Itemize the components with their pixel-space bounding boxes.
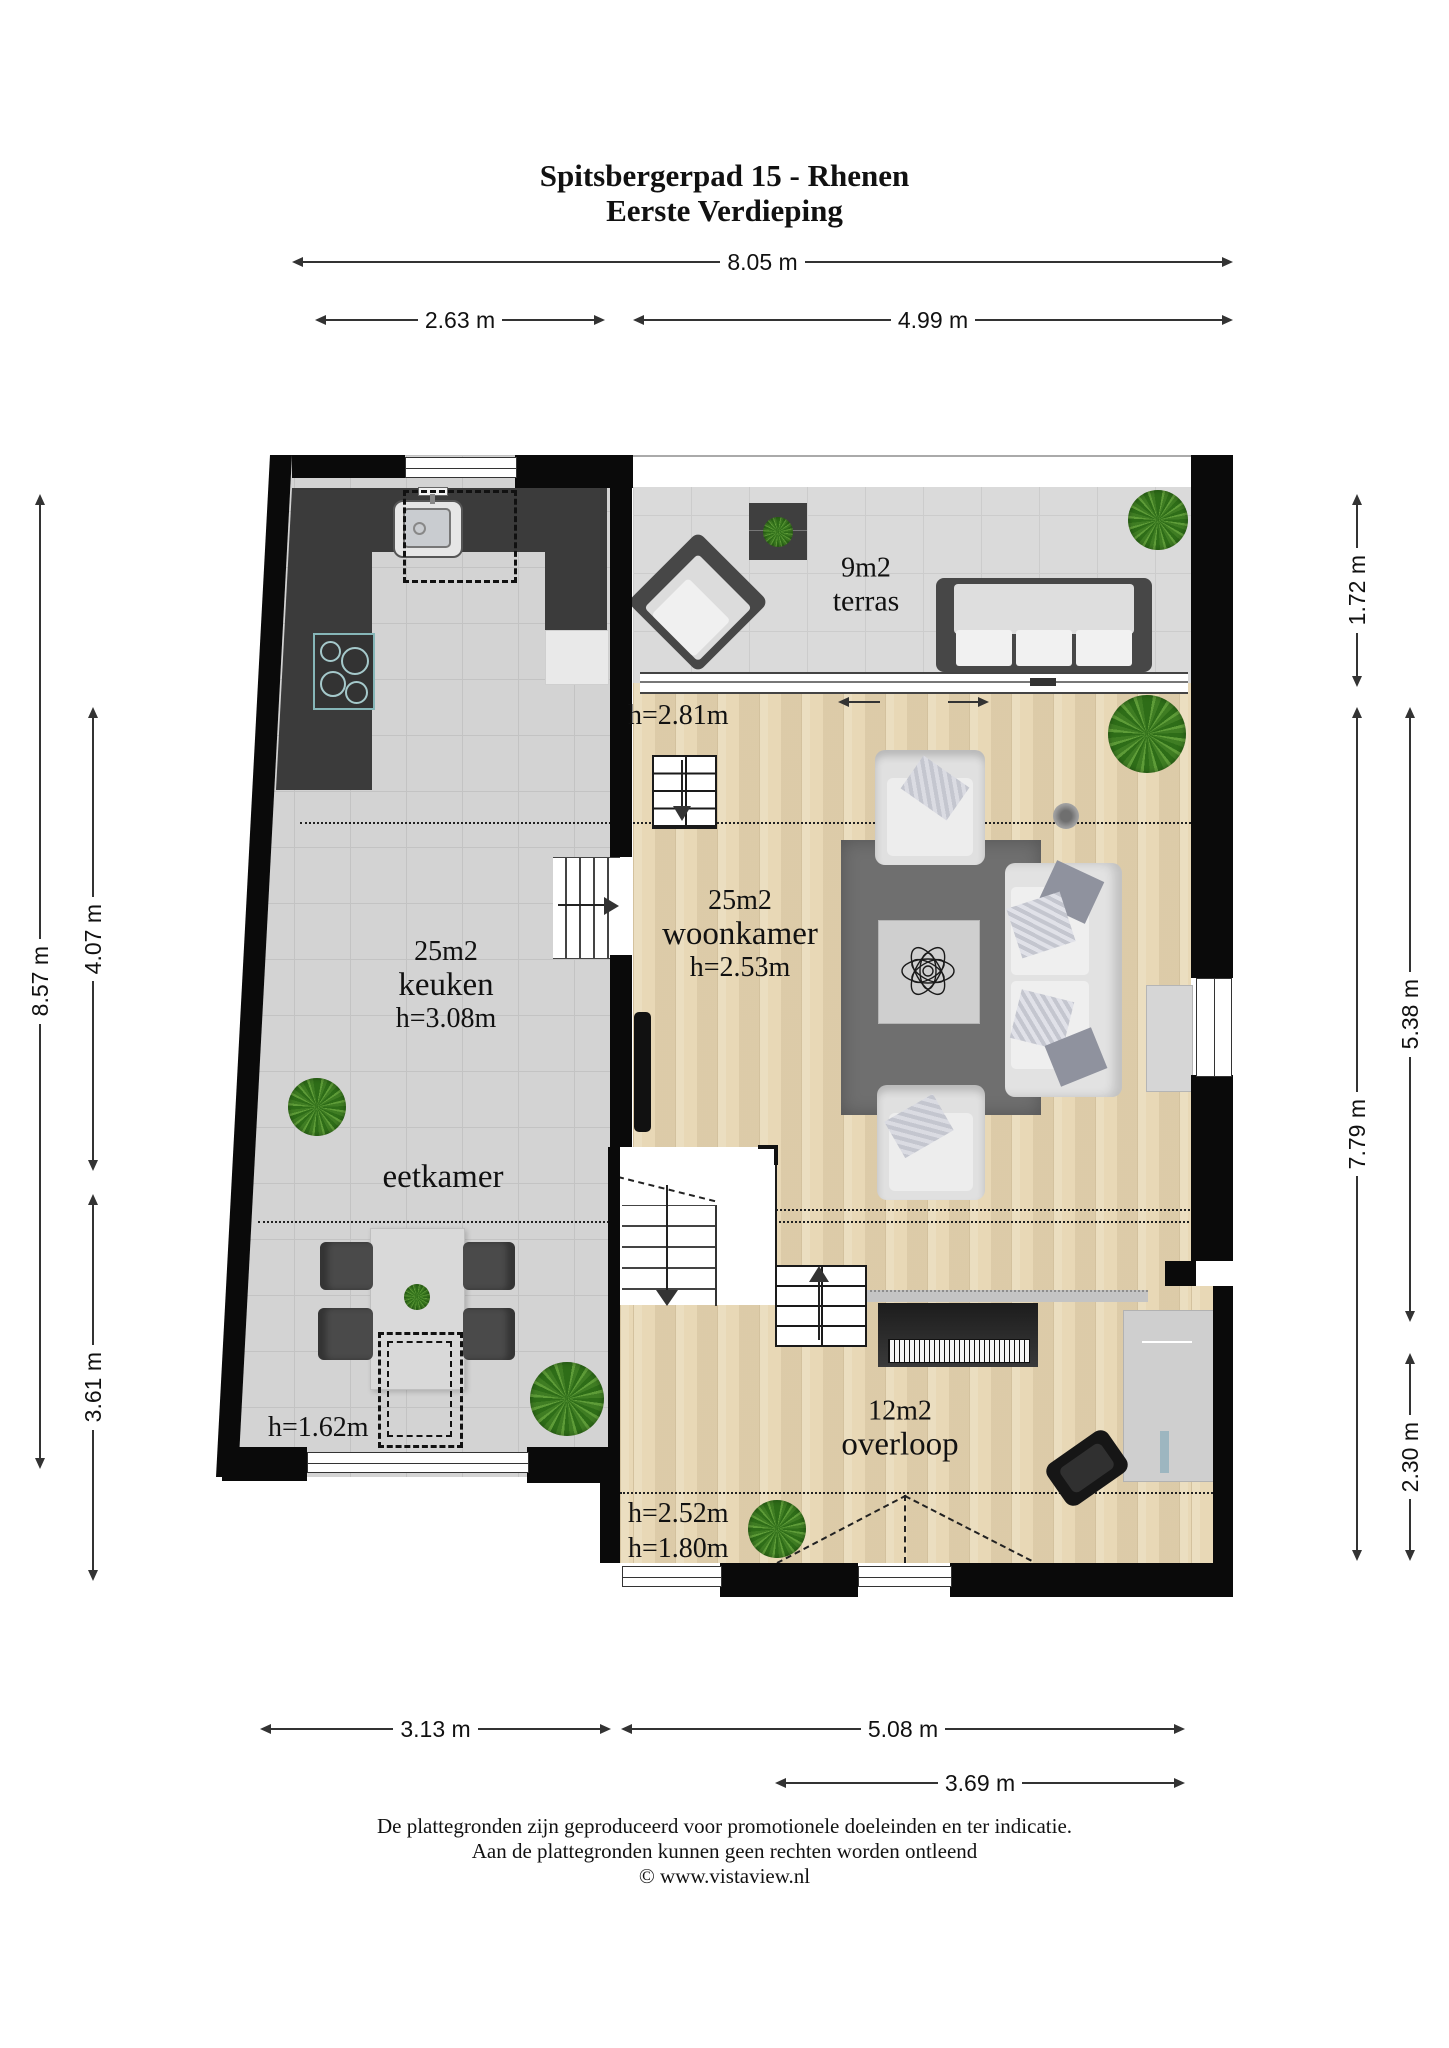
window (858, 1566, 952, 1587)
tv-icon (634, 1012, 651, 1132)
title-address: Spitsbergerpad 15 - Rhenen (0, 158, 1449, 193)
door-handle (1030, 678, 1056, 686)
dining-chair (463, 1308, 515, 1360)
room-name: eetkamer (383, 1159, 504, 1195)
wall-eetkamer-bottom-right (527, 1447, 610, 1483)
terrace-sofa (936, 578, 1152, 672)
door-arrow-left-icon (838, 697, 849, 707)
terras-open-edge (633, 455, 1191, 487)
floorplan-page: Spitsbergerpad 15 - Rhenen Eerste Verdie… (0, 0, 1449, 2048)
room-name: overloop (841, 1427, 958, 1463)
dim-left-mid: 4.07 m (85, 707, 101, 1171)
dim-width-right: 4.99 m (633, 312, 1233, 328)
room-name: keuken (396, 967, 497, 1003)
stair-arrow-stem (666, 1185, 668, 1291)
stair-up-arrow-icon (809, 1266, 829, 1282)
height-label: h=2.81m (628, 700, 729, 732)
dim-label: 2.63 m (418, 312, 502, 328)
wall-right-lower (1213, 1286, 1233, 1563)
plant-icon (1108, 695, 1186, 773)
roof-line-vertical (904, 1495, 906, 1563)
dim-label: 4.07 m (85, 897, 101, 981)
stair-arrow-stem (818, 1282, 820, 1340)
wall-divider-d (600, 1477, 620, 1563)
dim-right-upper: 5.38 m (1402, 707, 1418, 1322)
sofa-back-cushion (954, 584, 1134, 634)
room-area: 25m2 (662, 885, 818, 916)
title-floor: Eerste Verdieping (0, 193, 1449, 228)
height-label: h=2.52m (628, 1498, 729, 1530)
dormer-outline-inner (387, 1341, 452, 1437)
wall-top-mid (515, 455, 633, 488)
height-label: h=1.80m (628, 1533, 729, 1565)
coffee-table (878, 920, 980, 1024)
piano-keys (888, 1339, 1030, 1363)
height-label: h=1.62m (268, 1412, 369, 1444)
room-area: 9m2 (833, 553, 900, 584)
burner (341, 647, 369, 675)
sofa-seat (1076, 630, 1132, 666)
page-title: Spitsbergerpad 15 - Rhenen Eerste Verdie… (0, 158, 1449, 228)
dim-bottom-left: 3.13 m (260, 1721, 611, 1737)
room-height: h=2.53m (662, 952, 818, 983)
sofa (1005, 863, 1122, 1097)
room-height: h=3.08m (396, 1003, 497, 1034)
dim-label: 3.13 m (393, 1721, 477, 1737)
stair-arrow-stem (558, 904, 604, 906)
dim-label: 5.38 m (1402, 972, 1418, 1056)
kitchen-counter-right (545, 488, 607, 633)
desk-lamp-icon (1160, 1431, 1169, 1473)
door-arrow-right-icon (978, 697, 989, 707)
stair-arrow-stem (681, 760, 683, 808)
desk (1123, 1310, 1215, 1482)
stair-right-arrow-icon (604, 897, 619, 915)
potted-plant-icon (763, 517, 793, 547)
dim-left-lower: 3.61 m (85, 1194, 101, 1581)
stair-down-arrow-icon (656, 1290, 678, 1306)
plant-icon (288, 1078, 346, 1136)
dim-label: 3.69 m (938, 1775, 1022, 1791)
door-slide-arrow-right (948, 701, 980, 703)
dim-width-left: 2.63 m (315, 312, 605, 328)
sofa-seat (1016, 630, 1072, 666)
wall-overloop-bottom-b (950, 1563, 1233, 1597)
stair-down-arrow-icon (673, 806, 691, 821)
plant-icon (1128, 490, 1188, 550)
stair-railing (865, 1290, 1148, 1302)
room-label-eetkamer: eetkamer (383, 1159, 504, 1195)
window (622, 1566, 722, 1587)
disclaimer-line2: Aan de plattegronden kunnen geen rechten… (0, 1839, 1449, 1864)
wall-eetkamer-bottom-left (222, 1447, 307, 1481)
dim-label: 1.72 m (1349, 548, 1365, 632)
burner (345, 681, 368, 704)
dim-bottom-right: 5.08 m (621, 1721, 1185, 1737)
height-line (620, 1492, 1233, 1494)
dining-chair (318, 1308, 373, 1360)
room-name: woonkamer (662, 916, 818, 952)
table-plant-icon (404, 1284, 430, 1310)
burner (320, 641, 341, 662)
dim-width-total: 8.05 m (292, 254, 1233, 270)
dim-label: 3.61 m (85, 1345, 101, 1429)
stairwell-corner-mark (758, 1145, 778, 1165)
plant-icon (530, 1362, 604, 1436)
dining-chair (320, 1242, 373, 1290)
room-name: terras (833, 584, 900, 620)
wall-right-upper (1191, 455, 1233, 978)
dim-label: 2.30 m (1402, 1415, 1418, 1499)
burner (320, 671, 346, 697)
wall-divider-c (608, 1147, 620, 1477)
piano (878, 1303, 1038, 1367)
dim-right-lower: 2.30 m (1402, 1353, 1418, 1561)
door-track (640, 681, 1188, 683)
dim-label: 8.57 m (32, 939, 48, 1023)
wall-divider-a (610, 488, 632, 857)
ceiling-light (1053, 803, 1079, 829)
room-label-woonkamer: 25m2 woonkamer h=2.53m (662, 885, 818, 983)
sideboard (1146, 985, 1193, 1092)
disclaimer: De plattegronden zijn geproduceerd voor … (0, 1814, 1449, 1889)
room-area: 12m2 (841, 1396, 958, 1427)
room-label-keuken: 25m2 keuken h=3.08m (396, 936, 497, 1034)
dormer-outline (403, 490, 517, 583)
door-slide-arrow-left (848, 701, 880, 703)
plant-icon (748, 1500, 806, 1558)
dim-label: 4.99 m (891, 312, 975, 328)
wall-top-left (292, 455, 405, 478)
disclaimer-line1: De plattegronden zijn geproduceerd voor … (0, 1814, 1449, 1839)
wall-door-stub (1165, 1261, 1196, 1286)
dim-left-total: 8.57 m (32, 494, 48, 1469)
desk-item (1142, 1341, 1192, 1343)
cooktop (313, 633, 375, 710)
copyright: © www.vistaview.nl (0, 1864, 1449, 1889)
window (307, 1452, 529, 1473)
room-area: 25m2 (396, 936, 497, 967)
dim-label: 7.79 m (1349, 1092, 1365, 1176)
room-label-terras: 9m2 terras (833, 553, 900, 620)
dim-bottom-inner: 3.69 m (775, 1775, 1185, 1791)
kitchen-appliance (545, 630, 609, 685)
wall-right-mid (1191, 1075, 1233, 1261)
wall-overloop-bottom-a (720, 1563, 858, 1597)
room-label-overloop: 12m2 overloop (841, 1396, 958, 1463)
armchair (875, 750, 985, 865)
dormer-outline (378, 1332, 463, 1448)
window (1196, 978, 1232, 1077)
dim-label: 5.08 m (861, 1721, 945, 1737)
wall-divider-b (610, 955, 632, 1147)
flower-decor-icon (879, 921, 977, 1021)
dining-chair (463, 1242, 515, 1290)
armchair (877, 1085, 985, 1200)
dim-right-terras: 1.72 m (1349, 494, 1365, 687)
dim-label: 8.05 m (720, 254, 804, 270)
window (405, 457, 517, 478)
sofa-seat (956, 630, 1012, 666)
sliding-door (640, 672, 1188, 694)
dim-right-main: 7.79 m (1349, 707, 1365, 1561)
